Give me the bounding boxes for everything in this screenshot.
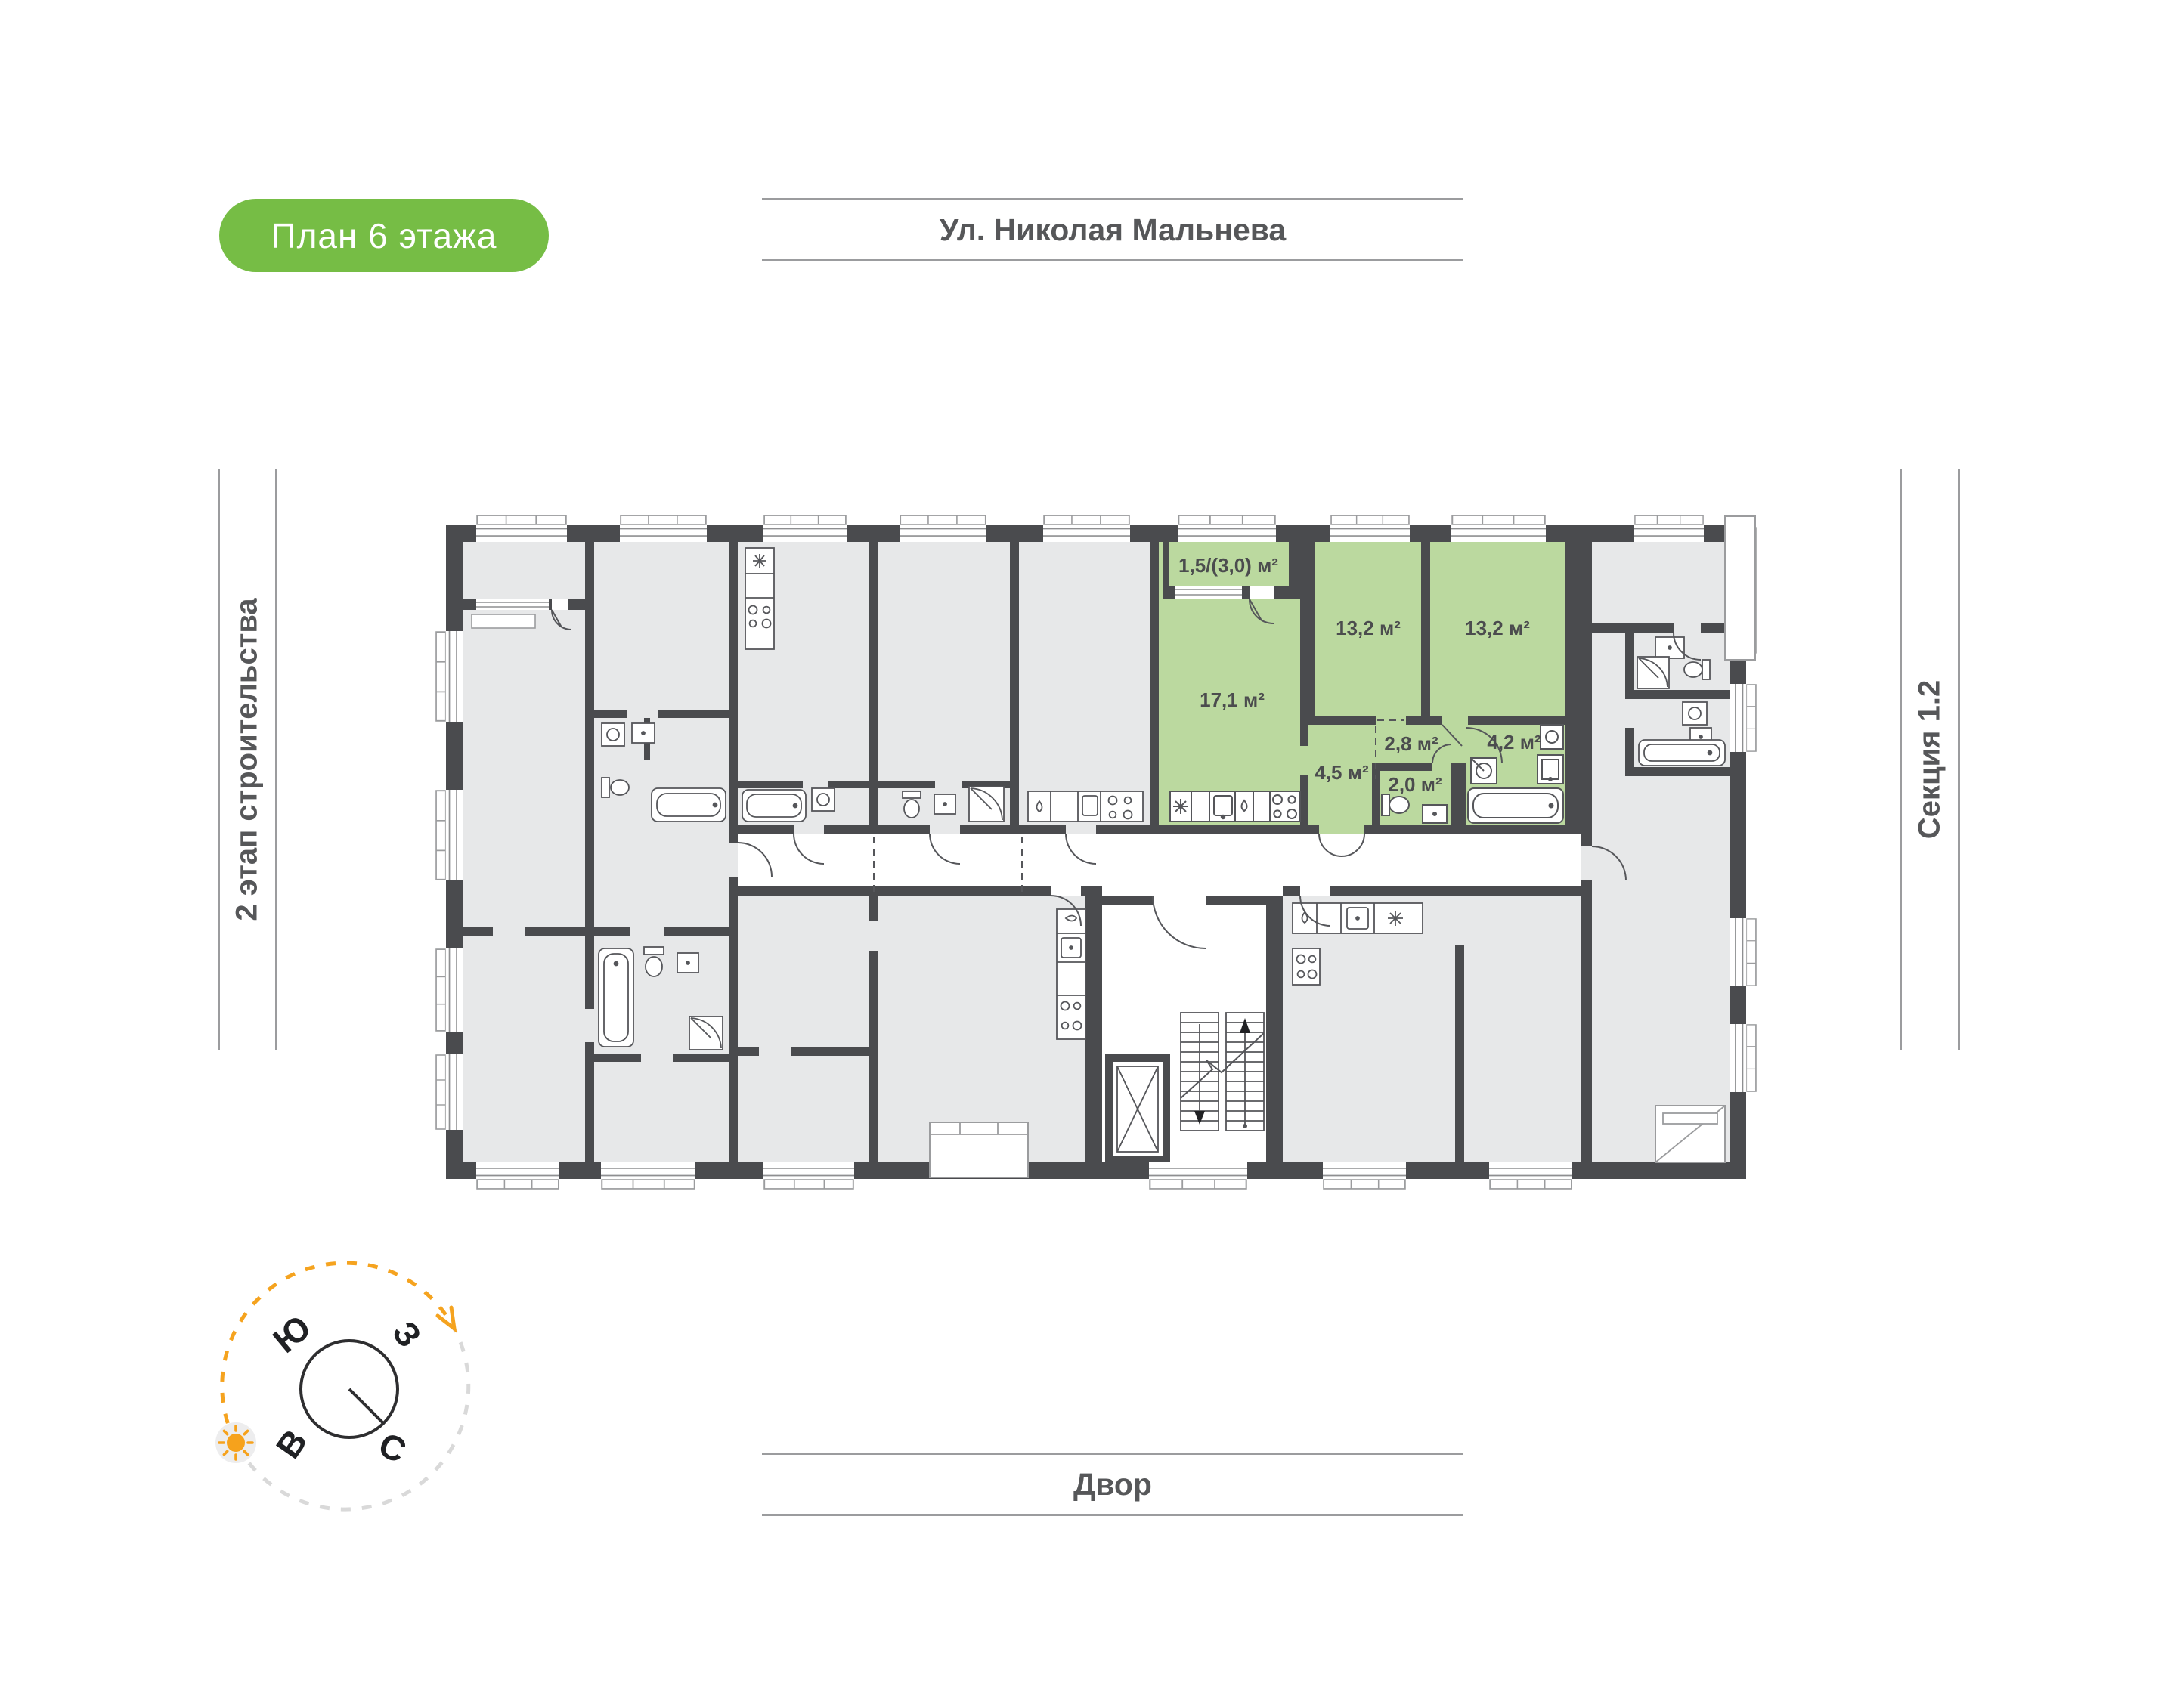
compass-east: В — [268, 1422, 315, 1465]
courtyard-label: Двор — [1073, 1467, 1152, 1502]
construction-stage-label: 2 этап строительства — [231, 598, 265, 921]
arrow-icon — [438, 1307, 454, 1329]
sun-icon — [215, 1422, 256, 1463]
kitchen-sink — [1214, 796, 1232, 815]
compass-south: Ю — [265, 1307, 318, 1360]
floor-badge: План 6 этажа — [219, 199, 549, 272]
left-rail-line — [275, 469, 277, 1050]
bedroom2-area: 13,2 м² — [1465, 617, 1530, 639]
compass-west: З — [385, 1314, 429, 1354]
fridge-icon — [1173, 799, 1188, 814]
bedroom1-area: 13,2 м² — [1336, 617, 1401, 639]
corridor — [738, 834, 1581, 896]
floor-badge-label: План 6 этажа — [271, 215, 497, 256]
hallway-area: 4,5 м² — [1315, 761, 1369, 784]
compass: Ю З В С — [194, 1234, 496, 1536]
toilet — [1382, 794, 1389, 815]
right-rail-line — [1900, 469, 1902, 1050]
living-area: 17,1 м² — [1200, 688, 1265, 711]
fridge-icon — [1388, 911, 1403, 926]
hall-area: 2,8 м² — [1384, 732, 1438, 755]
street-axis: Ул. Николая Мальнева — [762, 198, 1463, 261]
wc-area: 2,0 м² — [1388, 773, 1442, 796]
radiator — [472, 614, 535, 628]
floor-plan-page: План 6 этажа Ул. Николая Мальнева Двор 2… — [0, 0, 2177, 1708]
compass-north: С — [373, 1425, 412, 1471]
left-rail-line — [218, 469, 220, 1050]
right-rail-line — [1958, 469, 1960, 1050]
floor-plan: 1,5/(3,0) м² 17,1 м² 13,2 м² 13,2 м² 4,5… — [434, 513, 1758, 1202]
bathroom-area: 4,2 м² — [1487, 731, 1541, 753]
kettle-icon — [1242, 800, 1247, 811]
balcony-area: 1,5/(3,0) м² — [1178, 554, 1278, 577]
section-label: Секция 1.2 — [1913, 680, 1947, 839]
courtyard-axis: Двор — [762, 1453, 1463, 1516]
street-label: Ул. Николая Мальнева — [940, 212, 1286, 248]
fridge-icon — [753, 554, 766, 568]
